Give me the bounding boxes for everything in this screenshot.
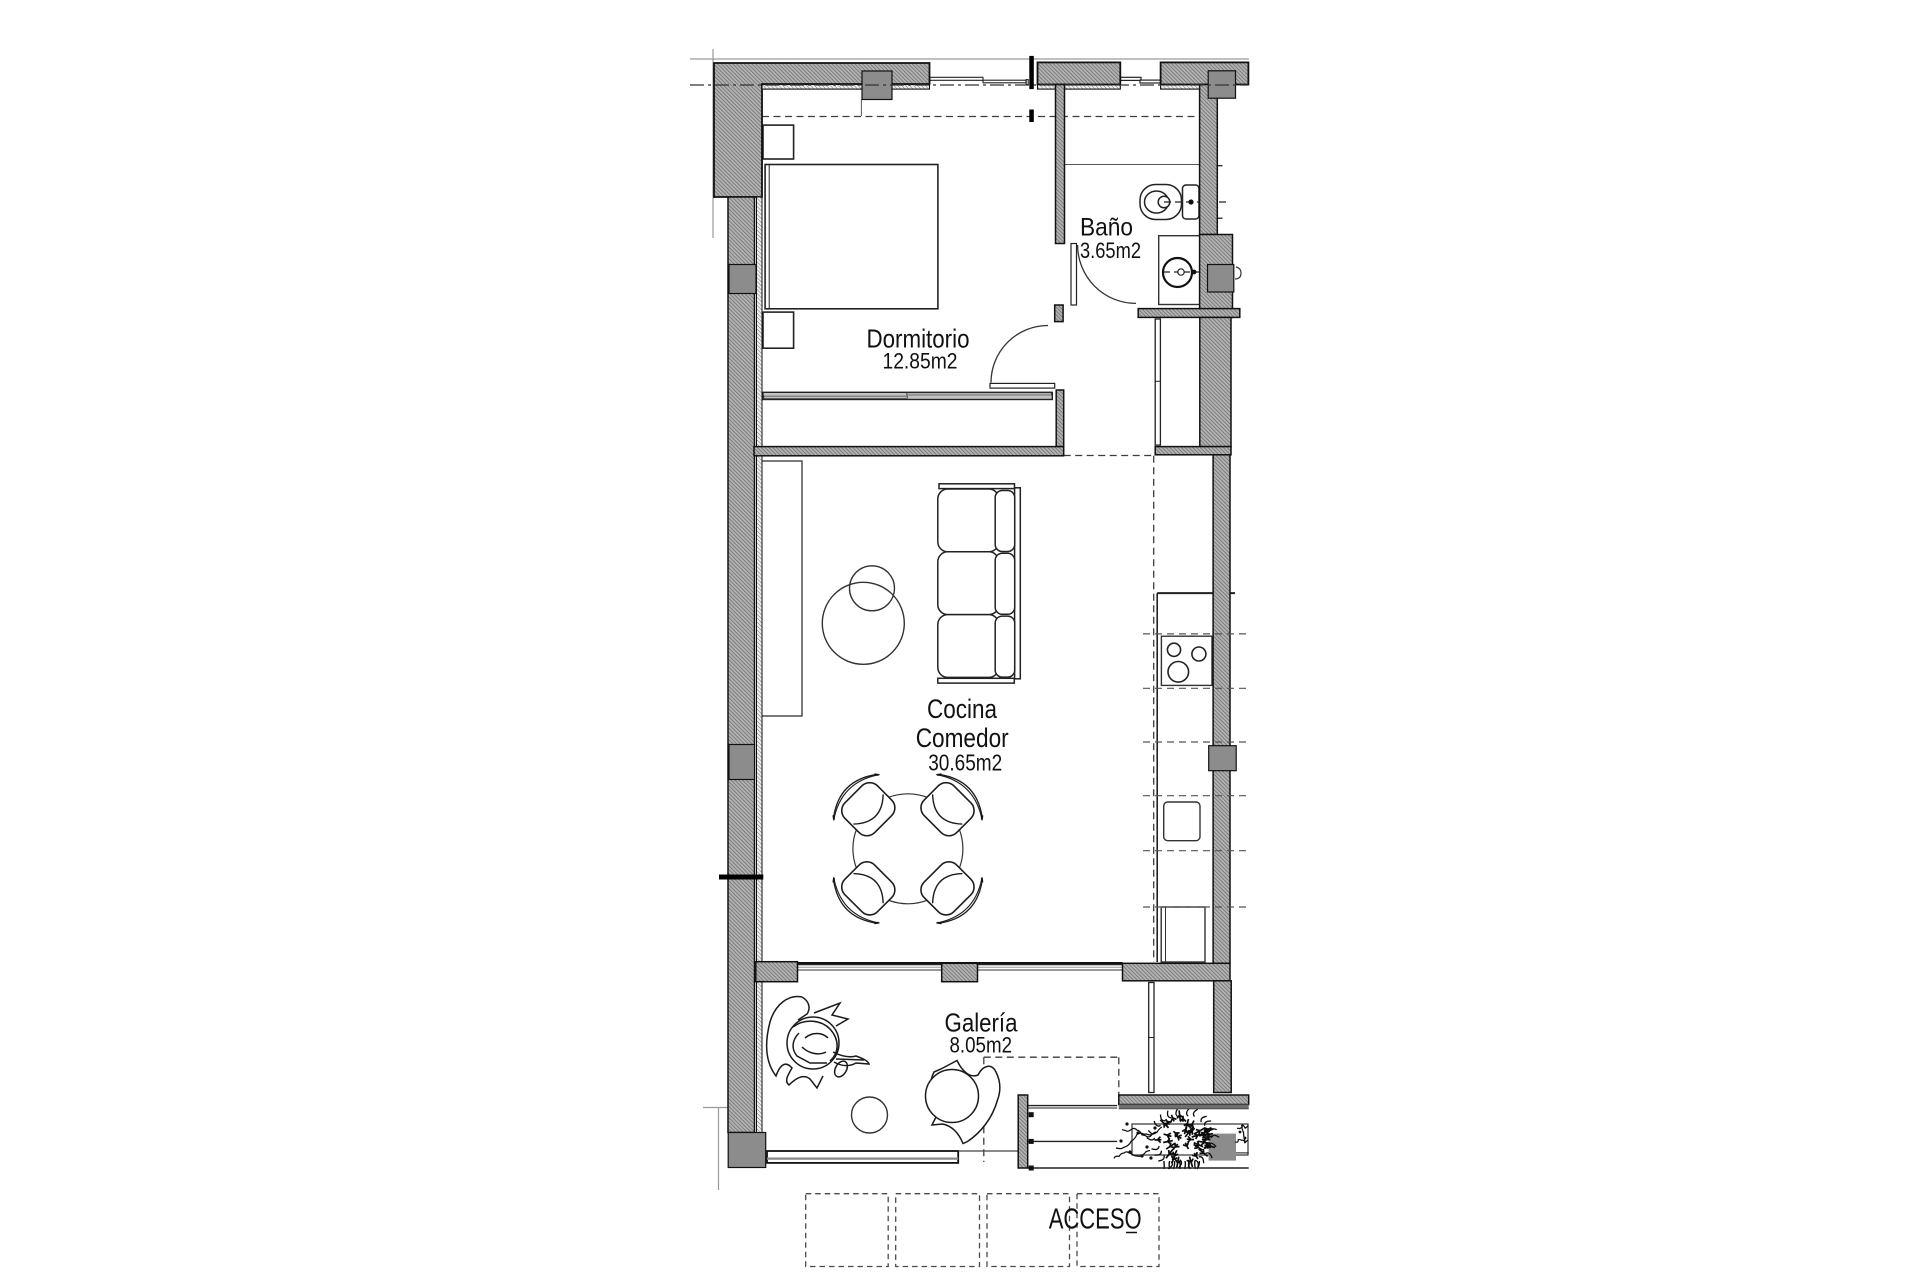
svg-text:Comedor: Comedor [916,723,1009,753]
svg-text:12.85m2: 12.85m2 [883,349,958,374]
svg-text:3.65m2: 3.65m2 [1080,238,1141,263]
svg-text:ACCESO: ACCESO [1049,1204,1142,1236]
svg-text:Cocina: Cocina [927,694,998,724]
svg-text:30.65m2: 30.65m2 [928,750,1002,776]
svg-text:8.05m2: 8.05m2 [950,1033,1013,1058]
